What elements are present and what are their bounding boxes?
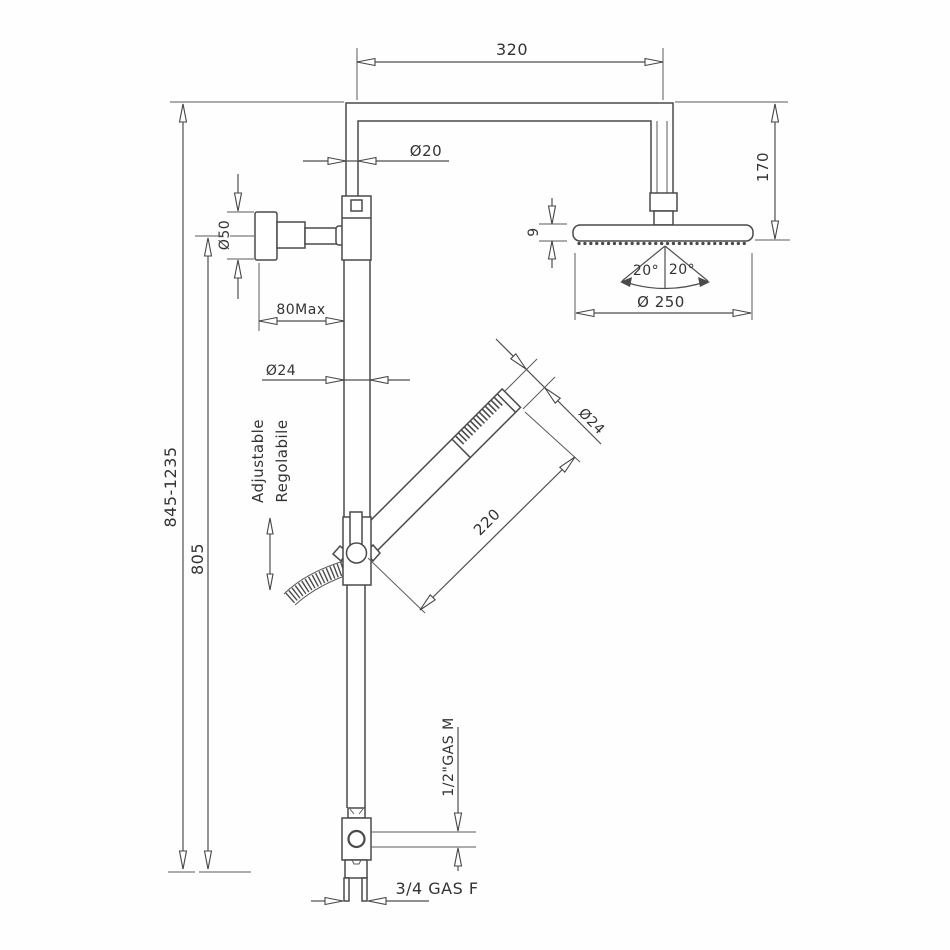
dim-overall-height: 845-1235 — [161, 104, 195, 872]
dim-inlet-thread: 3/4 GAS F — [311, 879, 479, 905]
dim-overall-height-label: 845-1235 — [161, 446, 180, 527]
hand-shower-handle — [357, 389, 520, 552]
dim-column-diameter-label: Ø24 — [266, 363, 296, 379]
dim-handshower-diameter: Ø24 — [496, 339, 608, 444]
dim-handshower-length-label: 220 — [470, 505, 504, 539]
technical-drawing-sheet: 320 Ø20 170 9 20° 20° — [0, 0, 950, 950]
dim-flange-diameter-label: Ø50 — [217, 220, 233, 250]
dim-angle-right-label: 20° — [669, 262, 695, 278]
shower-head — [573, 193, 753, 244]
dim-arm-length: 320 — [357, 40, 663, 100]
dim-head-thickness: 9 — [526, 198, 567, 268]
dim-fixed-height: 805 — [188, 236, 251, 872]
outlet-port — [349, 831, 365, 847]
adjustable-annotation: Adjustable Regolabile — [249, 419, 291, 590]
bottom-inlet-fitting — [342, 818, 371, 901]
dim-pipe-diameter: Ø20 — [303, 142, 449, 165]
dim-flange-diameter: Ø50 — [217, 174, 254, 299]
dim-spray-angles: 20° 20° — [620, 246, 710, 289]
column-upper-tube — [344, 260, 370, 517]
dim-fixed-height-label: 805 — [188, 543, 207, 575]
dim-outlet-thread: 1/2"GAS M — [371, 717, 476, 871]
dim-column-diameter: Ø24 — [262, 363, 410, 384]
dim-head-offset-label: 170 — [754, 152, 772, 182]
riser-and-arm-pipe — [346, 103, 673, 196]
dim-inlet-thread-label: 3/4 GAS F — [395, 879, 478, 898]
dim-head-diameter-label: Ø 250 — [637, 293, 685, 311]
adjustable-label-it: Regolabile — [273, 419, 291, 502]
adjustable-label-en: Adjustable — [249, 419, 267, 503]
wall-flange — [255, 212, 343, 260]
dim-arm-length-label: 320 — [496, 40, 528, 59]
dim-angle-left-label: 20° — [633, 263, 659, 279]
shower-column-diagram: 320 Ø20 170 9 20° 20° — [0, 0, 950, 950]
dim-outlet-thread-label: 1/2"GAS M — [441, 717, 457, 796]
dim-pipe-diameter-label: Ø20 — [410, 142, 442, 160]
dim-wall-distance: 80Max — [259, 263, 344, 331]
column-lower-tube — [347, 585, 365, 818]
dim-wall-distance-label: 80Max — [276, 302, 325, 318]
dim-handshower-diameter-label: Ø24 — [575, 405, 608, 438]
column-junction-block — [336, 196, 371, 260]
dim-head-diameter: Ø 250 — [575, 253, 752, 320]
dim-head-thickness-label: 9 — [526, 227, 542, 236]
dim-head-offset: 170 — [754, 104, 790, 240]
